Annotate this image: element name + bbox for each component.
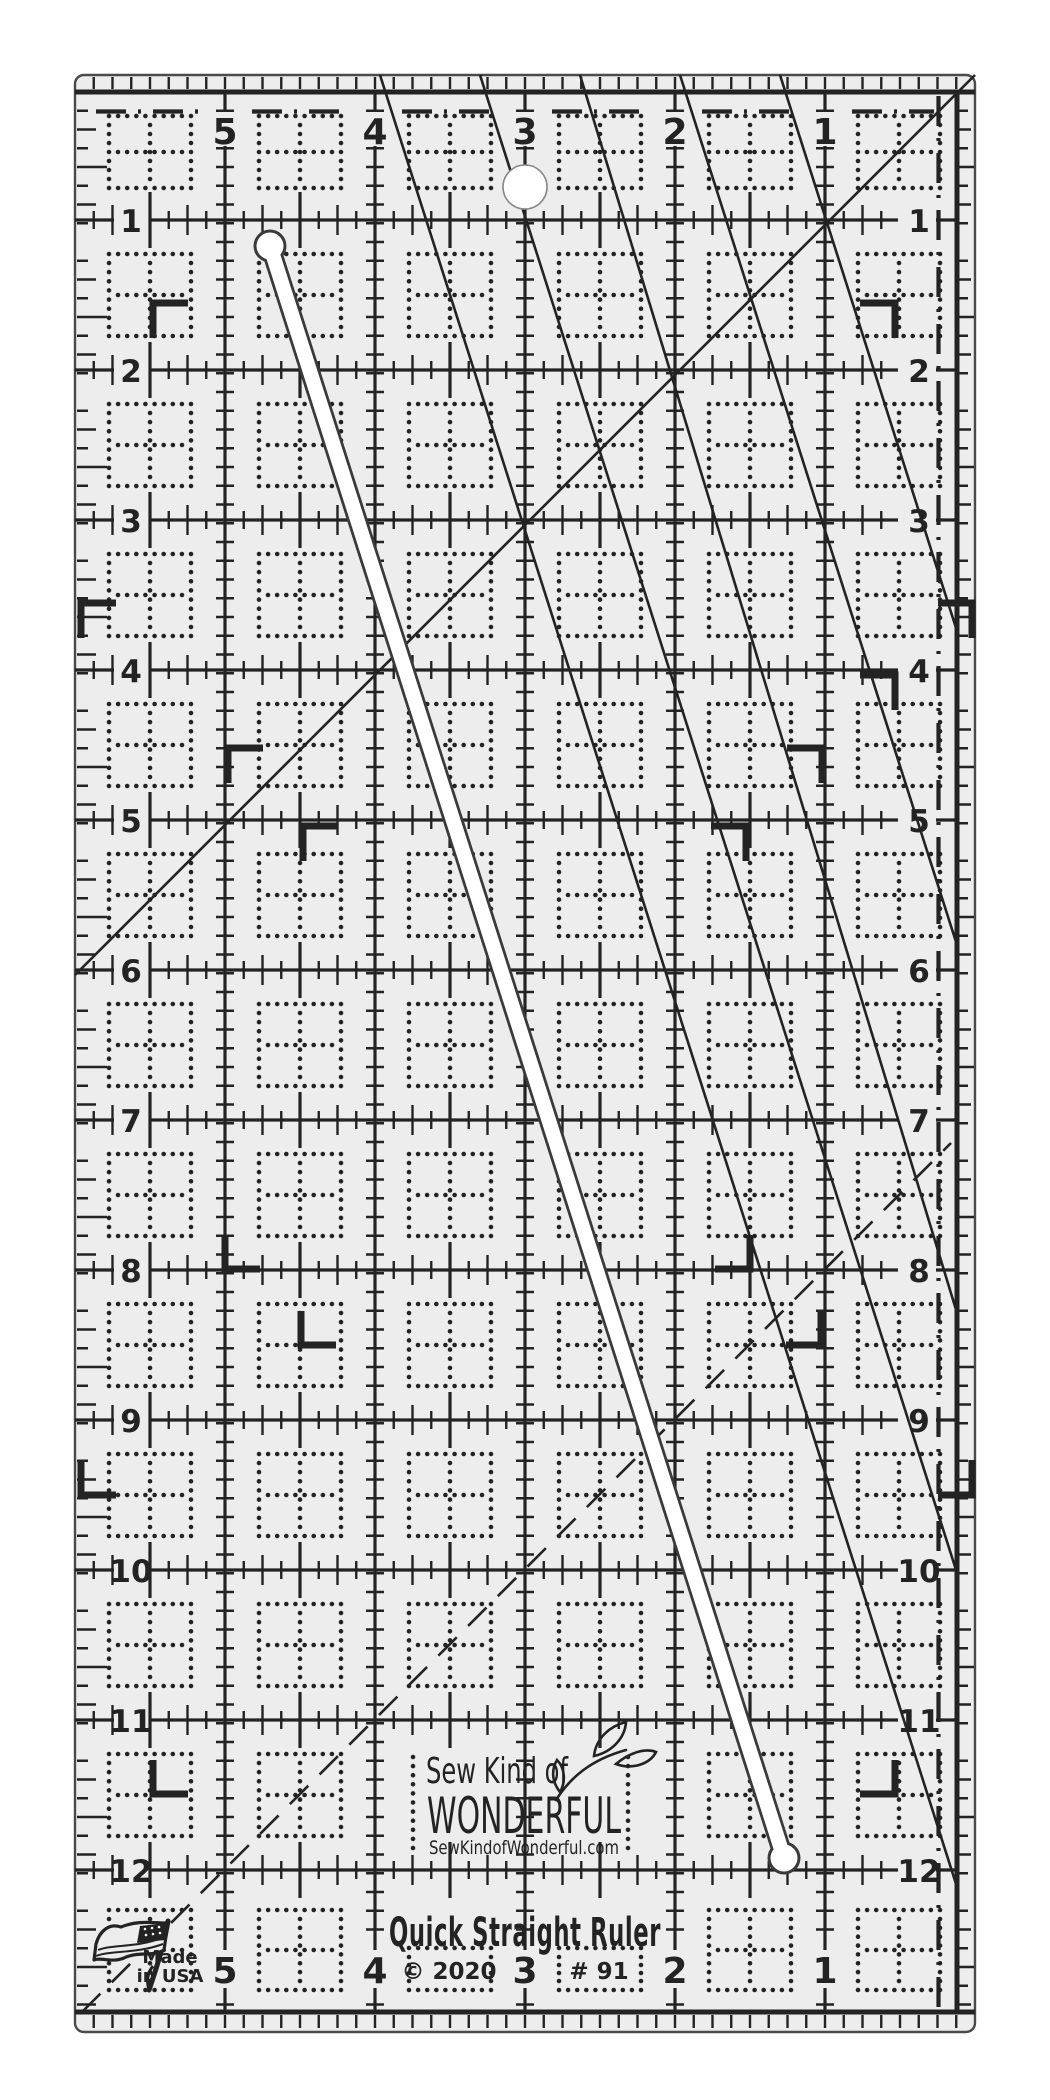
svg-text:10: 10: [109, 1554, 152, 1590]
made-in-line1: Made: [142, 1947, 197, 1968]
svg-text:2: 2: [662, 1951, 687, 1992]
svg-text:11: 11: [897, 1704, 940, 1740]
svg-text:7: 7: [908, 1104, 930, 1140]
svg-text:6: 6: [908, 954, 930, 990]
brand-line1: Sew Kind of: [426, 1751, 569, 1792]
svg-text:3: 3: [512, 1951, 537, 1992]
made-in-line2: in USA: [137, 1966, 204, 1987]
svg-text:2: 2: [120, 354, 142, 390]
svg-text:4: 4: [908, 654, 930, 690]
svg-text:10: 10: [897, 1554, 940, 1590]
svg-text:3: 3: [908, 504, 930, 540]
svg-text:11: 11: [109, 1704, 152, 1740]
svg-text:1: 1: [908, 204, 930, 240]
svg-text:2: 2: [662, 112, 687, 153]
svg-text:9: 9: [908, 1404, 930, 1440]
product-image: 5432154321123456789101112123456789101112…: [0, 0, 1050, 2100]
svg-text:5: 5: [908, 804, 930, 840]
svg-text:1: 1: [812, 1951, 837, 1992]
svg-text:3: 3: [120, 504, 142, 540]
svg-text:5: 5: [212, 1951, 237, 1992]
svg-text:4: 4: [362, 112, 387, 153]
svg-text:8: 8: [908, 1254, 930, 1290]
product-title: Quick Straight Ruler: [389, 1910, 661, 1956]
svg-text:7: 7: [120, 1104, 142, 1140]
svg-text:5: 5: [120, 804, 142, 840]
hanging-hole: [503, 165, 547, 209]
svg-text:4: 4: [120, 654, 142, 690]
svg-text:4: 4: [362, 1951, 387, 1992]
svg-text:8: 8: [120, 1254, 142, 1290]
svg-text:1: 1: [120, 204, 142, 240]
quilting-ruler: 5432154321123456789101112123456789101112…: [0, 0, 1050, 2100]
svg-text:9: 9: [120, 1404, 142, 1440]
svg-text:12: 12: [109, 1854, 152, 1890]
brand-website: SewKindofWonderful.com: [429, 1837, 619, 1859]
svg-text:3: 3: [512, 112, 537, 153]
svg-text:5: 5: [212, 112, 237, 153]
svg-text:12: 12: [897, 1854, 940, 1890]
svg-text:1: 1: [812, 112, 837, 153]
svg-text:2: 2: [908, 354, 930, 390]
copyright-text: © 2020: [401, 1959, 496, 1985]
model-number: # 91: [569, 1959, 628, 1985]
svg-text:6: 6: [120, 954, 142, 990]
